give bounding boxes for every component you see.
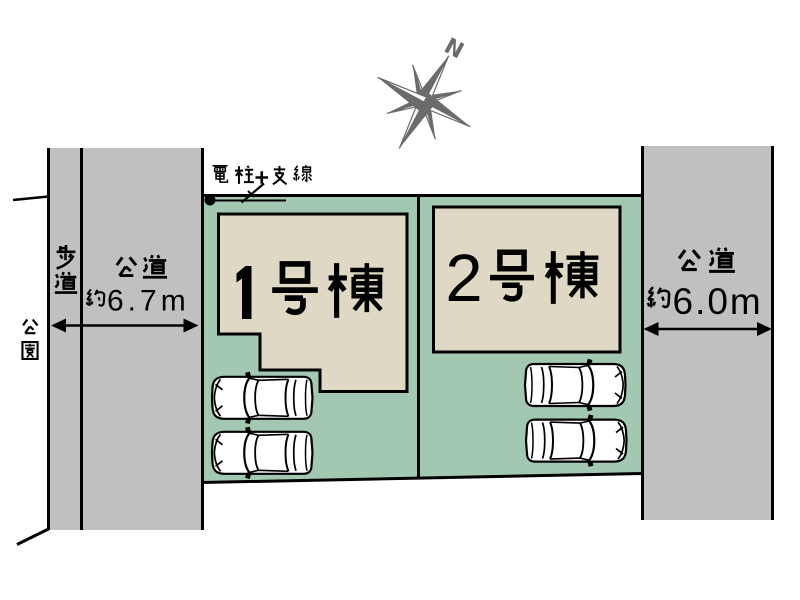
svg-text:6.7m: 6.7m — [107, 285, 190, 318]
svg-text:2: 2 — [445, 241, 482, 316]
svg-text:6.0m: 6.0m — [673, 281, 763, 322]
